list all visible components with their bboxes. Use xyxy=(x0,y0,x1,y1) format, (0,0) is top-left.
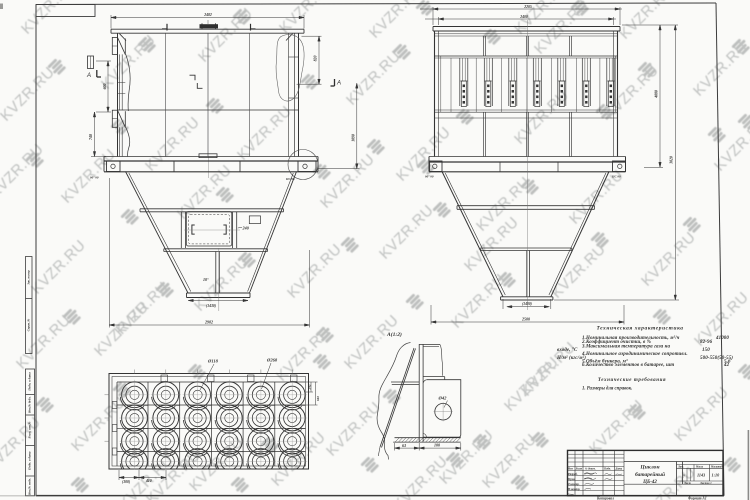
svg-text:Подп. и дата: Подп. и дата xyxy=(28,451,32,471)
svg-text:820: 820 xyxy=(314,56,318,62)
svg-text:Подп. и дата: Подп. и дата xyxy=(28,372,32,392)
svg-text:100: 100 xyxy=(434,442,440,447)
svg-text:Лист: Лист xyxy=(575,468,583,471)
svg-text:Масштаб: Масштаб xyxy=(710,466,723,469)
svg-text:(1400): (1400) xyxy=(522,302,532,306)
svg-text:82-96: 82-96 xyxy=(700,340,713,345)
svg-text:Циклон: Циклон xyxy=(639,465,659,471)
svg-text:у: у xyxy=(682,472,685,477)
svg-text:2482: 2482 xyxy=(203,13,212,17)
svg-text:740: 740 xyxy=(89,134,93,140)
svg-text:Ø118: Ø118 xyxy=(207,359,219,364)
svg-text:Т.контр.: Т.контр. xyxy=(568,482,580,486)
svg-text:Изм: Изм xyxy=(567,468,573,471)
svg-text:ПС 90: ПС 90 xyxy=(285,177,295,181)
svg-text:Утв.: Утв. xyxy=(568,492,575,496)
svg-text:батарейный: батарейный xyxy=(635,471,665,478)
svg-text:Зак. номер: Зак. номер xyxy=(27,270,31,286)
svg-text:10°: 10° xyxy=(203,277,209,282)
svg-text:610: 610 xyxy=(316,396,320,401)
svg-text:Подп.: Подп. xyxy=(603,468,611,471)
svg-text:150: 150 xyxy=(702,348,710,353)
svg-text:входе, °С: входе, °С xyxy=(557,348,578,353)
svg-text:Технические требования: Технические требования xyxy=(598,378,666,383)
svg-text:3020: 3020 xyxy=(670,156,674,165)
svg-text:Лит.: Лит. xyxy=(677,466,684,469)
svg-text:Ø268: Ø268 xyxy=(266,358,278,363)
svg-text:Дата: Дата xyxy=(615,468,623,471)
svg-text:1090: 1090 xyxy=(351,134,355,142)
svg-text:(100): (100) xyxy=(122,480,131,484)
svg-text:Масса: Масса xyxy=(695,466,704,469)
svg-text:Формат А1: Формат А1 xyxy=(688,496,707,500)
svg-text:2205: 2205 xyxy=(523,5,532,9)
svg-text:90° 90: 90° 90 xyxy=(90,176,99,180)
svg-text:ПС 90: ПС 90 xyxy=(611,175,621,179)
svg-text:1:10: 1:10 xyxy=(712,472,721,477)
svg-text:240: 240 xyxy=(242,226,250,231)
svg-text:2982: 2982 xyxy=(204,320,213,325)
svg-text:4080: 4080 xyxy=(655,90,659,99)
svg-text:Взам. инв.№: Взам. инв.№ xyxy=(28,421,32,439)
svg-text:90° 90: 90° 90 xyxy=(425,175,434,179)
svg-text:242: 242 xyxy=(308,384,312,390)
svg-text:№ докум.: № докум. xyxy=(584,468,596,471)
svg-text:1143: 1143 xyxy=(697,472,705,477)
svg-text:41000: 41000 xyxy=(715,336,729,341)
svg-text:Разраб.: Разраб. xyxy=(568,472,578,476)
svg-text:63: 63 xyxy=(402,443,406,448)
svg-text:Пров.: Пров. xyxy=(567,477,576,481)
svg-text:A: A xyxy=(336,81,341,87)
svg-text:A(1:2): A(1:2) xyxy=(386,331,402,338)
svg-text:A: A xyxy=(86,73,91,79)
svg-text:410: 410 xyxy=(145,479,152,483)
svg-text:Лист: Лист xyxy=(683,482,692,485)
svg-text:6.Количество элементов в батар: 6.Количество элементов в батарее, шт xyxy=(582,363,674,368)
svg-text:Инв.№ дубл.: Инв.№ дубл. xyxy=(28,396,32,414)
svg-text:2500: 2500 xyxy=(521,316,530,321)
svg-text:3.Максимальная температура газ: 3.Максимальная температура газа на xyxy=(581,344,670,349)
svg-text:Н.контр.: Н.контр. xyxy=(567,487,580,491)
svg-text:600: 600 xyxy=(103,84,107,90)
svg-text:(1430): (1430) xyxy=(206,304,217,308)
svg-text:Копировал: Копировал xyxy=(596,496,614,500)
svg-text:1. Размеры для справок.: 1. Размеры для справок. xyxy=(582,387,632,392)
svg-text:Техническая характеристика: Техническая характеристика xyxy=(596,326,683,332)
svg-text:Листов 1: Листов 1 xyxy=(699,482,712,485)
svg-text:Ø42: Ø42 xyxy=(438,396,448,401)
svg-text:Инв.№ подл.: Инв.№ подл. xyxy=(28,478,32,496)
svg-text:2400: 2400 xyxy=(519,15,528,19)
svg-text:4.Номинальное аэродинамическое: 4.Номинальное аэродинамическое сопротивл… xyxy=(581,352,688,357)
svg-text:42: 42 xyxy=(723,363,730,368)
svg-text:Справ. №: Справ. № xyxy=(27,319,31,332)
